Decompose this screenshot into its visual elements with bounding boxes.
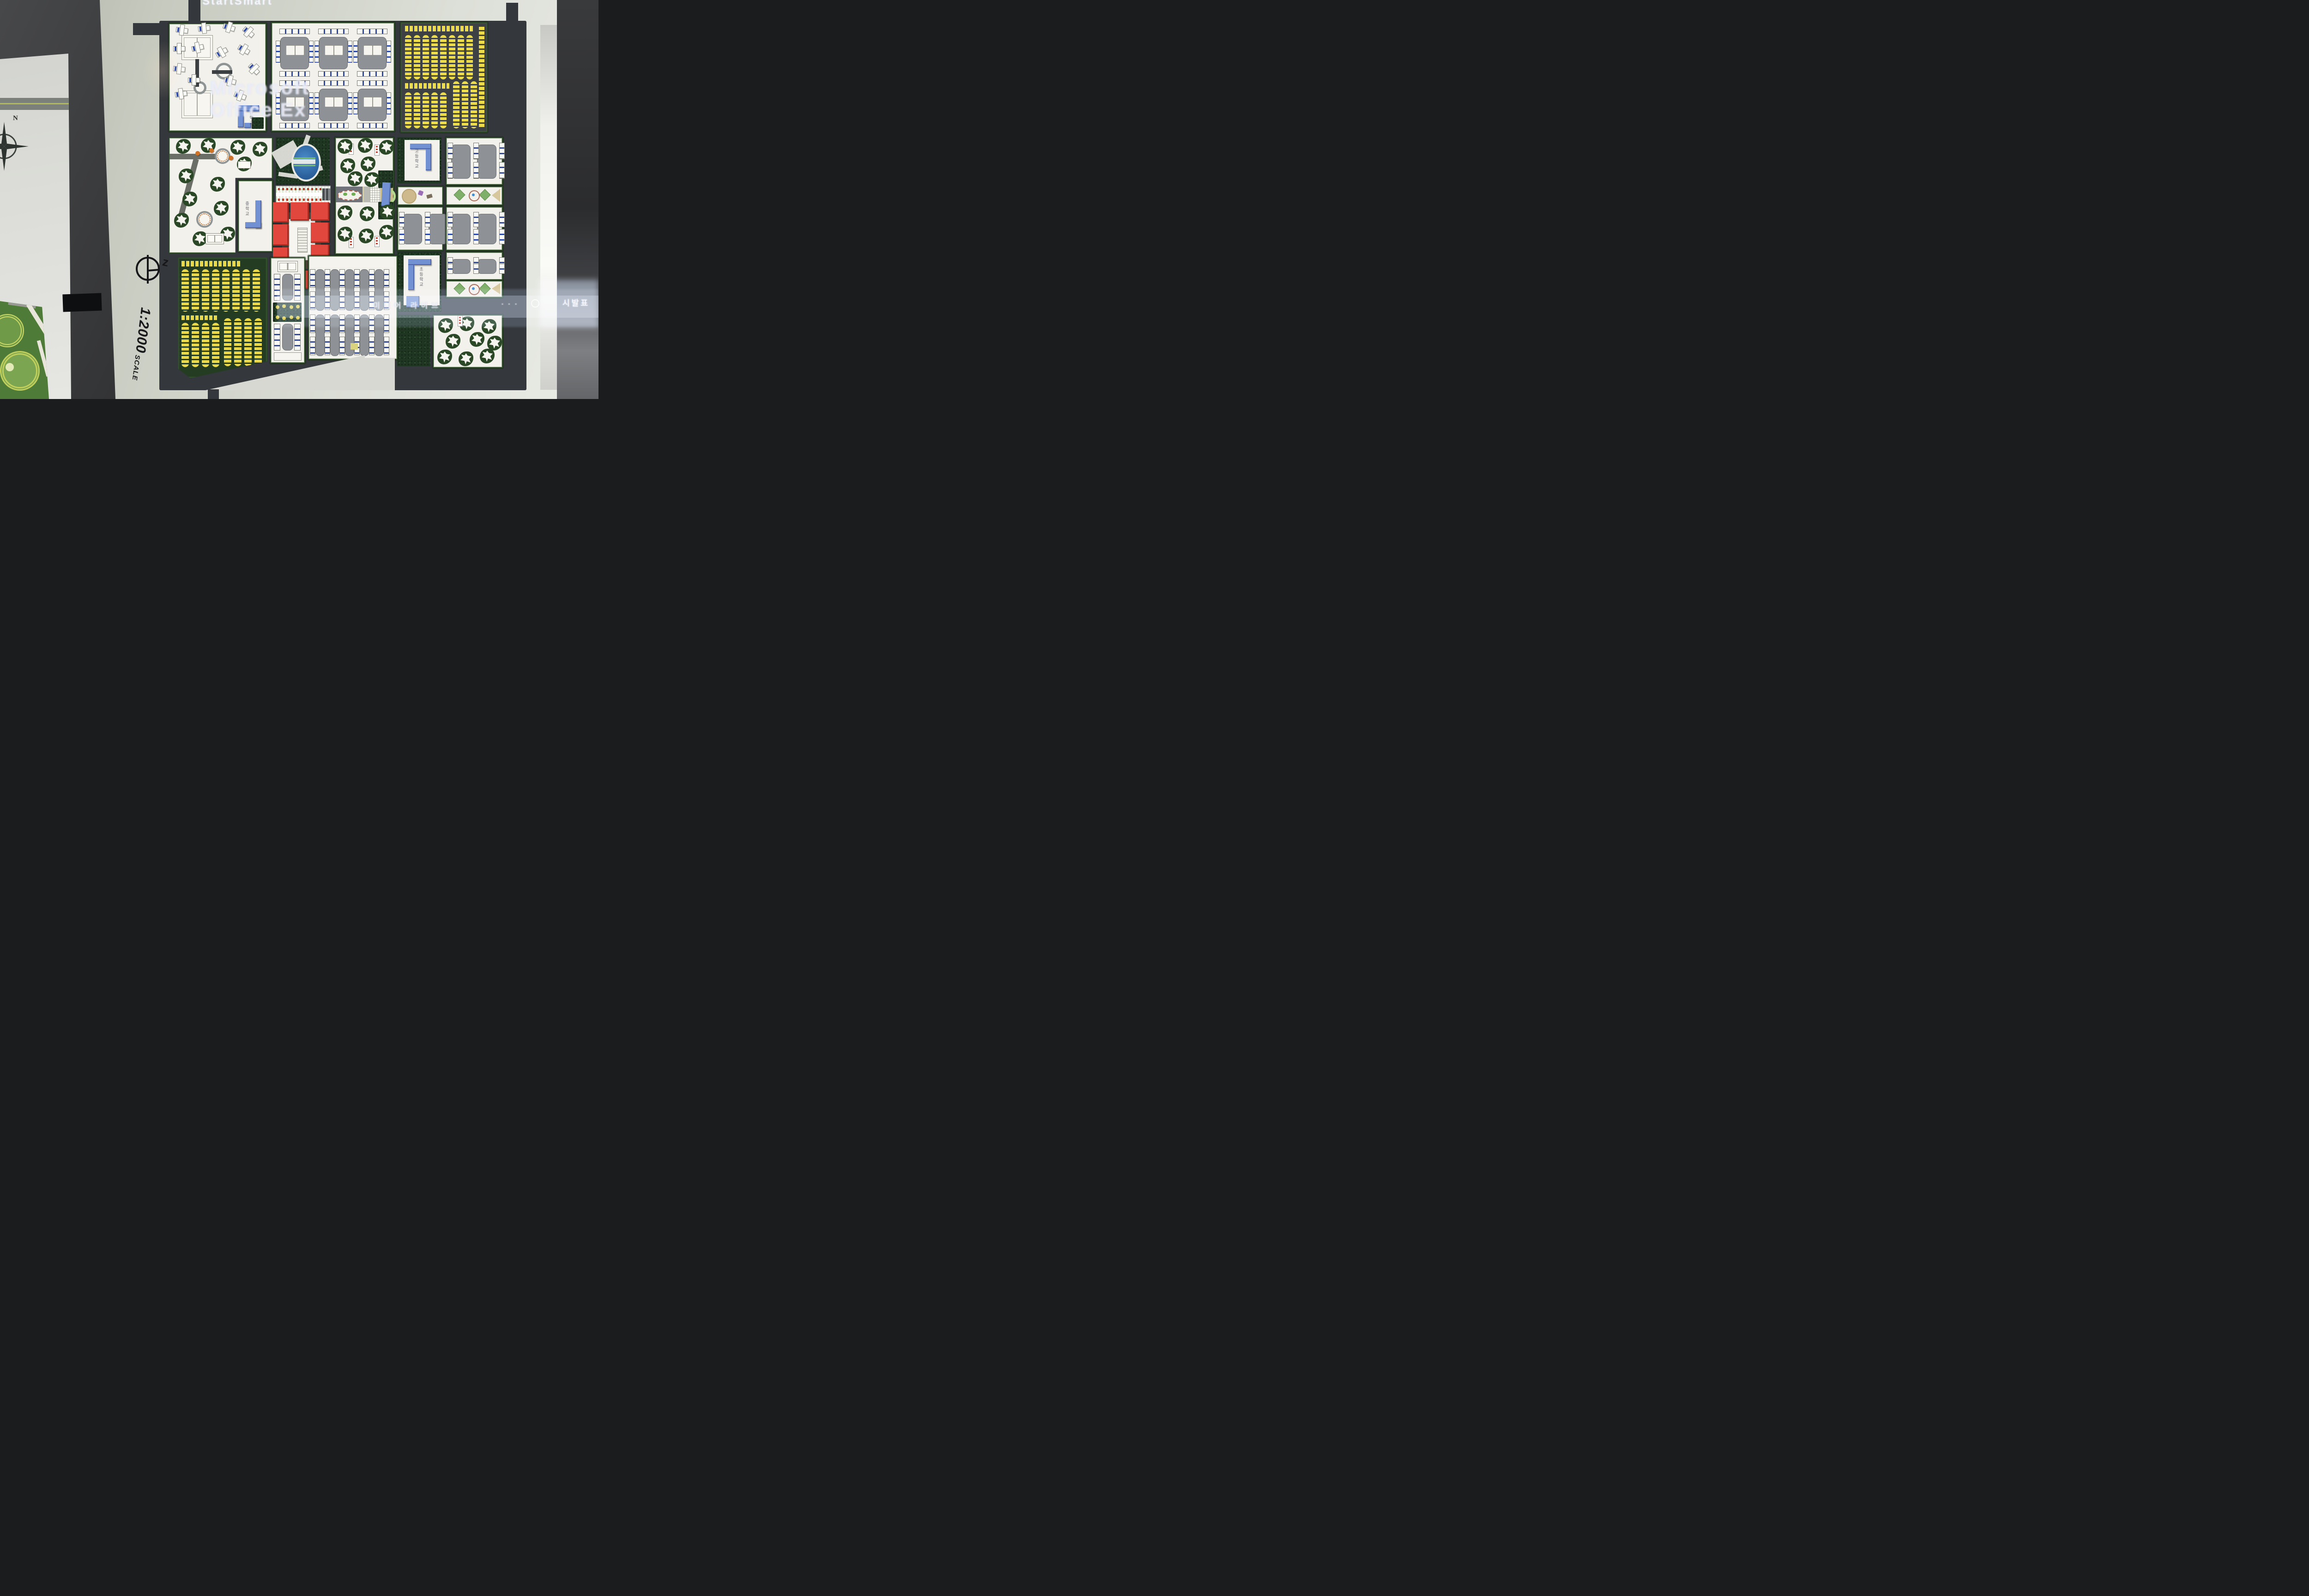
yellow-row xyxy=(181,269,189,312)
gray-slab xyxy=(330,314,339,356)
y-building xyxy=(360,140,371,151)
sport-court xyxy=(278,261,298,272)
label-elementary-school-a: 초등학교 xyxy=(248,105,254,126)
y-building xyxy=(362,208,373,219)
axis-eye-boulevard xyxy=(336,187,363,202)
gray-yard xyxy=(451,145,471,179)
y-building xyxy=(366,174,377,185)
y-building xyxy=(460,353,471,364)
slab-building xyxy=(473,162,479,179)
yellow-row xyxy=(254,318,262,366)
yard-court xyxy=(286,45,295,55)
sport-court xyxy=(206,233,224,244)
model-block-slabs-e1 xyxy=(397,206,443,251)
model-block-industry-north xyxy=(271,22,395,132)
cul-de-sac xyxy=(215,148,230,164)
board-wedge-2 xyxy=(363,358,395,390)
striped-building xyxy=(248,63,260,75)
slab-building xyxy=(354,314,360,333)
gray-yard xyxy=(451,259,471,274)
y-building xyxy=(342,160,353,171)
yellow-strip xyxy=(405,83,449,89)
park-road-diagonal xyxy=(179,158,199,215)
yellow-row xyxy=(440,92,447,128)
y-building xyxy=(381,227,392,238)
scale-word: SCALE xyxy=(131,354,142,381)
school-leg xyxy=(426,149,431,170)
left-presentation-board: N xyxy=(0,0,72,399)
yellow-tree xyxy=(282,316,286,320)
road-stub-top-left-v xyxy=(188,0,200,24)
slab-building xyxy=(447,212,453,227)
play-equip xyxy=(418,190,424,196)
yard-court xyxy=(325,97,334,107)
y-building xyxy=(471,334,483,345)
slab-building xyxy=(279,123,310,128)
slab-building xyxy=(353,41,358,63)
school-bar xyxy=(410,144,431,149)
slab-building xyxy=(276,41,280,63)
yellow-row xyxy=(423,92,429,128)
yellow-row xyxy=(192,269,199,312)
yellow-strip xyxy=(181,261,241,266)
y-building xyxy=(339,141,351,152)
slab-building xyxy=(369,291,375,310)
road-stub-top-left-h xyxy=(133,23,161,35)
slab-building xyxy=(447,143,453,159)
y-building xyxy=(216,203,227,214)
slab-building xyxy=(399,229,405,244)
yellow-strip-v xyxy=(479,27,484,128)
striped-building xyxy=(234,91,247,100)
orange-tree xyxy=(195,151,200,156)
plaza-diamond xyxy=(453,283,465,295)
red-building xyxy=(311,202,329,221)
yard-court xyxy=(363,97,373,107)
slab-building xyxy=(325,269,330,288)
yellow-row xyxy=(414,35,420,79)
yellow-row xyxy=(440,35,447,79)
slab-building xyxy=(357,71,387,77)
school-leg xyxy=(238,111,244,127)
road-stub-top-right-v xyxy=(506,3,518,24)
yellow-row xyxy=(466,35,473,79)
projected-circle-icon xyxy=(531,299,539,308)
gray-yard xyxy=(429,214,448,244)
pond xyxy=(291,144,321,181)
model-block-diamond-plaza-2 xyxy=(446,280,503,298)
y-building xyxy=(339,229,351,240)
boulevard-lane xyxy=(276,193,322,196)
plaza-diamond xyxy=(479,189,491,201)
plan-path-1 xyxy=(26,303,49,341)
y-building xyxy=(212,179,223,190)
striped-building xyxy=(224,77,236,85)
striped-building xyxy=(198,25,210,32)
slab-building xyxy=(348,92,352,115)
yard-court xyxy=(295,97,304,107)
y-building xyxy=(184,193,195,205)
civic-core xyxy=(297,228,308,253)
yellow-row xyxy=(202,323,209,367)
slab-building xyxy=(499,212,505,227)
slab-building xyxy=(425,229,430,244)
red-building xyxy=(311,223,329,243)
model-block-slabs-ne xyxy=(446,137,503,185)
yellow-row xyxy=(234,318,242,366)
slab-building xyxy=(384,314,389,333)
y-building xyxy=(461,318,472,329)
slab-building xyxy=(310,314,315,333)
axis-grid-plaza xyxy=(370,187,380,202)
plan-ring-2 xyxy=(0,351,40,391)
slab-building xyxy=(369,314,375,333)
model-block-pavilion-plaza xyxy=(433,314,503,368)
sand-circle xyxy=(402,189,417,204)
yellow-row xyxy=(462,81,468,128)
plaza-strip xyxy=(311,257,394,267)
yellow-row xyxy=(192,323,199,367)
y-building xyxy=(482,351,493,362)
gray-slab xyxy=(375,269,384,311)
y-building xyxy=(178,141,189,152)
main-board-right-edge xyxy=(540,25,557,390)
model-block-middle-school xyxy=(238,180,273,252)
slab-building xyxy=(399,212,405,227)
street-sign xyxy=(458,315,463,326)
gray-slab xyxy=(330,269,339,311)
slab-building xyxy=(339,269,345,288)
slab-building xyxy=(499,162,505,179)
y-building xyxy=(339,207,351,218)
slab-building xyxy=(274,324,280,351)
yellow-tree xyxy=(276,305,279,309)
model-block-slabs-e2 xyxy=(446,206,503,251)
slab-building xyxy=(369,269,375,288)
slab-building xyxy=(447,264,453,274)
gray-yard xyxy=(403,214,422,244)
yellow-row xyxy=(212,269,219,312)
y-building xyxy=(447,336,459,347)
yellow-row xyxy=(224,318,231,366)
site-model xyxy=(159,21,526,390)
street-sign xyxy=(375,236,380,247)
gray-yard xyxy=(282,274,293,301)
yard-court xyxy=(286,97,295,107)
slab-building xyxy=(314,92,319,115)
left-board-plan xyxy=(0,301,49,399)
yard-court xyxy=(334,97,343,107)
school-bar xyxy=(408,259,431,265)
slab-building xyxy=(473,229,479,244)
gap-dark-bar xyxy=(62,293,102,312)
model-block-forest-pond xyxy=(276,137,330,185)
gray-slab xyxy=(360,314,369,356)
slab-building xyxy=(499,229,505,244)
yard-court xyxy=(295,45,304,55)
y-building xyxy=(382,206,393,218)
gray-slab xyxy=(360,269,369,311)
model-block-plaza xyxy=(335,137,394,254)
y-building xyxy=(194,233,206,244)
boulevard-dots xyxy=(278,199,322,201)
y-building xyxy=(440,320,451,331)
gray-slab xyxy=(345,269,354,311)
window-reflection xyxy=(141,41,185,101)
yellow-row xyxy=(253,269,260,312)
slab-building xyxy=(447,229,453,244)
yellow-tree xyxy=(282,304,286,308)
yellow-tree xyxy=(276,315,279,319)
gray-yard xyxy=(477,259,496,274)
striped-building xyxy=(175,27,188,34)
plan-ring-1 xyxy=(0,314,24,347)
gray-yard xyxy=(282,324,293,351)
cul-de-sac xyxy=(196,211,213,228)
slab-building xyxy=(499,143,505,159)
gray-slab xyxy=(345,314,354,356)
model-block-yellow-south xyxy=(178,257,267,378)
slab-building xyxy=(384,291,389,310)
gray-slab xyxy=(375,314,384,356)
pond-line xyxy=(293,165,315,166)
yard-court xyxy=(373,45,382,55)
slab-building xyxy=(339,337,345,355)
slab-building xyxy=(473,143,479,159)
yellow-row xyxy=(181,323,189,367)
yellow-row xyxy=(222,269,230,312)
y-building xyxy=(363,158,374,169)
pond-bridge xyxy=(293,159,315,164)
yard-court xyxy=(334,45,343,55)
eye-lens xyxy=(338,190,362,200)
red-building xyxy=(273,202,289,223)
label-elementary-school-b: 초등학교 xyxy=(418,267,424,287)
model-block-diamond-plaza xyxy=(446,186,503,206)
y-building xyxy=(181,170,192,181)
slab-building xyxy=(384,269,389,288)
yellow-tree xyxy=(296,316,300,320)
slab-building xyxy=(310,337,315,355)
y-building xyxy=(254,144,266,155)
slab-building xyxy=(357,29,387,34)
slab-building xyxy=(447,162,453,179)
yellow-row xyxy=(458,35,464,79)
tree-garden xyxy=(273,302,302,322)
school-annex-blue xyxy=(406,296,419,307)
road-stub-bottom-right xyxy=(507,357,518,390)
slab-building xyxy=(294,324,301,351)
yellow-tree xyxy=(290,305,293,309)
slab-building xyxy=(314,41,319,63)
school-bar xyxy=(245,222,261,228)
school-leg xyxy=(408,265,414,290)
photo: N xyxy=(0,0,598,399)
blue-slab-building xyxy=(381,182,391,207)
plaza-strip xyxy=(274,352,302,361)
striped-building xyxy=(215,47,228,58)
gray-slab xyxy=(315,269,325,311)
slab-building xyxy=(294,274,301,301)
model-block-narrow-rows xyxy=(270,257,305,363)
red-building xyxy=(273,224,289,246)
plan-ring-center xyxy=(6,363,14,371)
model-block-slabs-se xyxy=(446,252,503,280)
plaza-dot xyxy=(472,193,475,196)
slab-building xyxy=(384,337,389,355)
pale-patch xyxy=(351,343,358,350)
model-block-playground xyxy=(397,186,443,206)
yellow-row xyxy=(212,323,219,367)
slab-building xyxy=(353,92,358,115)
slab-building xyxy=(499,264,505,274)
slab-building xyxy=(357,123,387,128)
leaf xyxy=(343,193,347,196)
y-building xyxy=(350,173,361,184)
plaza-triangle xyxy=(492,189,500,202)
model-block-boulevard xyxy=(276,186,331,203)
slab-building xyxy=(309,41,314,63)
slab-building xyxy=(354,291,360,310)
y-building xyxy=(484,321,495,332)
left-board-header-line xyxy=(0,103,72,104)
slab-building xyxy=(339,291,345,310)
model-block-forest-square xyxy=(397,314,430,366)
gray-yard xyxy=(451,214,471,244)
yellow-strip xyxy=(181,315,218,320)
label-middle-school: 중학교 xyxy=(244,201,250,217)
striped-building xyxy=(223,23,236,31)
yard-court xyxy=(373,97,382,107)
slab-building xyxy=(354,269,360,288)
slab-building xyxy=(325,337,330,355)
model-block-yellow-north xyxy=(400,22,488,133)
plaza-triangle xyxy=(492,283,500,294)
slab-building xyxy=(369,337,375,355)
slab-building xyxy=(310,269,315,288)
y-building xyxy=(381,142,392,153)
pond-line xyxy=(293,157,315,159)
gray-yard xyxy=(477,214,496,244)
slab-building xyxy=(279,80,310,86)
road-stub-bottom-left-v xyxy=(208,389,219,399)
boulevard-stub xyxy=(322,188,330,200)
y-building xyxy=(361,230,372,242)
yellow-row xyxy=(449,35,455,79)
striped-building xyxy=(242,26,255,38)
yellow-row xyxy=(471,81,477,128)
slab-building xyxy=(318,123,349,128)
park-sign xyxy=(238,161,251,169)
plaza-diamond xyxy=(453,189,465,201)
yellow-tree xyxy=(290,315,293,319)
red-building xyxy=(290,202,309,221)
path xyxy=(212,70,232,74)
striped-building xyxy=(237,44,250,55)
slab-building xyxy=(325,314,330,333)
yellow-row xyxy=(232,269,240,312)
play-equip xyxy=(426,194,433,199)
slab-building xyxy=(473,212,479,227)
slab-building xyxy=(279,71,310,77)
slab-building xyxy=(274,274,280,301)
yellow-strip xyxy=(405,26,474,31)
orange-tree xyxy=(209,148,214,153)
compass-rose-icon xyxy=(0,121,30,172)
yellow-row xyxy=(405,35,411,79)
slab-building xyxy=(318,80,349,86)
yellow-row xyxy=(423,35,429,79)
gray-yard xyxy=(477,145,496,179)
yellow-row xyxy=(405,92,411,128)
boulevard-dots xyxy=(278,188,322,190)
leaf xyxy=(351,193,356,196)
slab-building xyxy=(309,92,314,115)
slab-building xyxy=(325,291,330,310)
y-building xyxy=(489,338,500,349)
model-block-industry-south xyxy=(308,255,398,360)
right-background xyxy=(557,0,598,399)
slab-building xyxy=(318,71,349,77)
yellow-row xyxy=(242,269,250,312)
gray-slab xyxy=(315,314,325,356)
yellow-row xyxy=(431,92,438,128)
y-building xyxy=(232,142,243,153)
slab-building xyxy=(318,29,349,34)
yard-court xyxy=(325,45,334,55)
striped-building xyxy=(188,78,200,83)
label-high-school: 고등학교 xyxy=(414,149,420,169)
slab-building xyxy=(276,92,280,115)
slab-building xyxy=(339,314,345,333)
yellow-row xyxy=(431,35,438,79)
slab-building xyxy=(279,29,310,34)
slab-building xyxy=(387,41,391,63)
plaza-diamond xyxy=(479,283,491,295)
orange-tree xyxy=(229,156,233,160)
slab-building xyxy=(473,264,479,274)
slab-building xyxy=(357,80,387,86)
y-building xyxy=(439,351,450,363)
yellow-row xyxy=(202,269,209,312)
slab-building xyxy=(425,212,430,227)
slab-building xyxy=(348,41,352,63)
slab-building xyxy=(387,92,391,115)
yellow-tree xyxy=(296,305,300,308)
y-building xyxy=(176,215,187,226)
yellow-row xyxy=(453,81,459,128)
yard-court xyxy=(363,45,373,55)
yellow-row xyxy=(244,318,252,366)
yellow-row xyxy=(414,92,420,128)
slab-building xyxy=(310,291,315,310)
